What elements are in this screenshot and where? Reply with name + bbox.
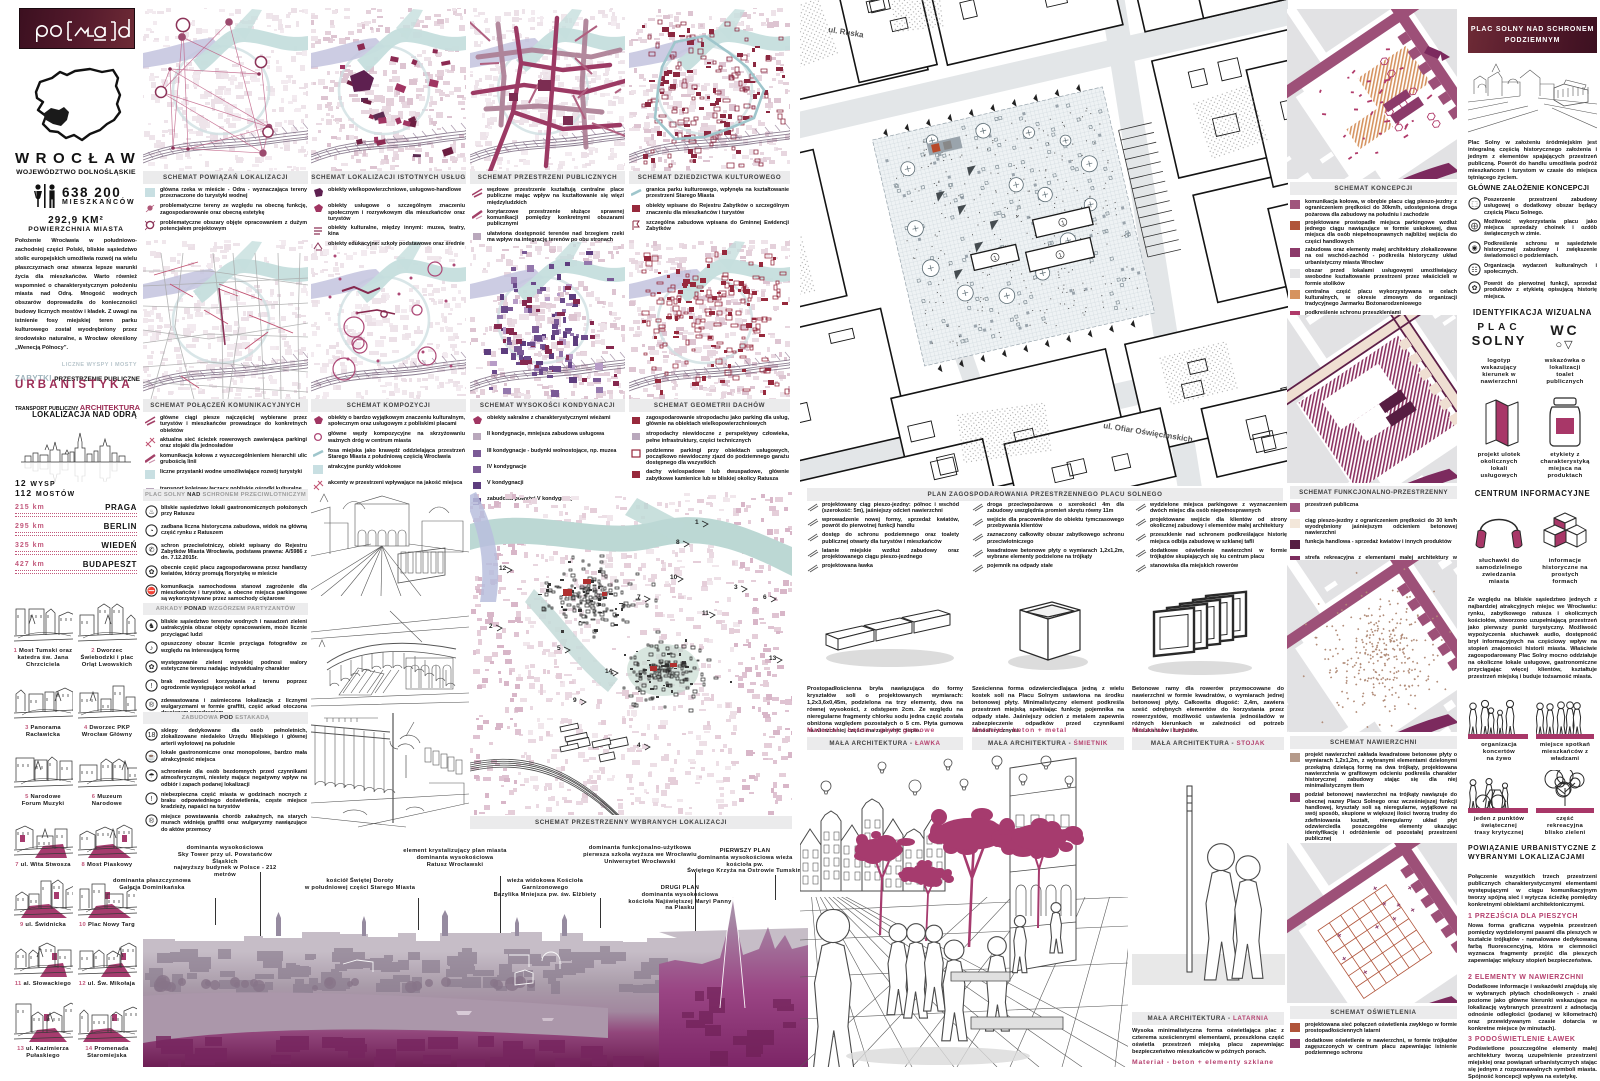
- svg-text:☷: ☷: [1471, 267, 1477, 274]
- svg-text:2: 2: [489, 623, 493, 630]
- svg-text:☂: ☂: [148, 772, 154, 780]
- svg-text:14: 14: [605, 668, 613, 675]
- svg-text:!: !: [151, 683, 153, 690]
- svg-text:◉: ◉: [1471, 245, 1477, 252]
- svg-text:®: ®: [149, 817, 155, 825]
- svg-text:9: 9: [573, 697, 577, 704]
- svg-text:7: 7: [637, 594, 641, 601]
- svg-text:⨁: ⨁: [1471, 222, 1478, 230]
- svg-text:⬚: ⬚: [1471, 201, 1478, 208]
- svg-text:3: 3: [734, 584, 738, 591]
- svg-text:1: 1: [695, 519, 699, 526]
- svg-text:☕: ☕: [147, 752, 156, 761]
- svg-text:♪: ♪: [150, 645, 154, 652]
- svg-text:4: 4: [637, 742, 641, 749]
- svg-text:5: 5: [557, 645, 561, 652]
- svg-text:11: 11: [702, 610, 709, 617]
- svg-text:8: 8: [676, 539, 680, 546]
- svg-text:✿: ✿: [149, 569, 155, 576]
- svg-text:◔: ◔: [149, 528, 153, 535]
- svg-text:✿: ✿: [149, 664, 155, 671]
- svg-text:13: 13: [769, 655, 777, 662]
- svg-text:12: 12: [499, 565, 507, 572]
- svg-text:®: ®: [149, 701, 155, 709]
- svg-text:♞: ♞: [148, 622, 154, 630]
- svg-text:✿: ✿: [1472, 285, 1478, 292]
- svg-text:♨: ♨: [148, 508, 154, 516]
- svg-text:✆: ✆: [149, 546, 155, 554]
- svg-text:!: !: [151, 796, 153, 803]
- svg-text:6: 6: [763, 594, 767, 601]
- svg-text:10: 10: [670, 574, 678, 581]
- svg-text:18: 18: [148, 732, 156, 739]
- svg-text:⛔: ⛔: [147, 586, 156, 595]
